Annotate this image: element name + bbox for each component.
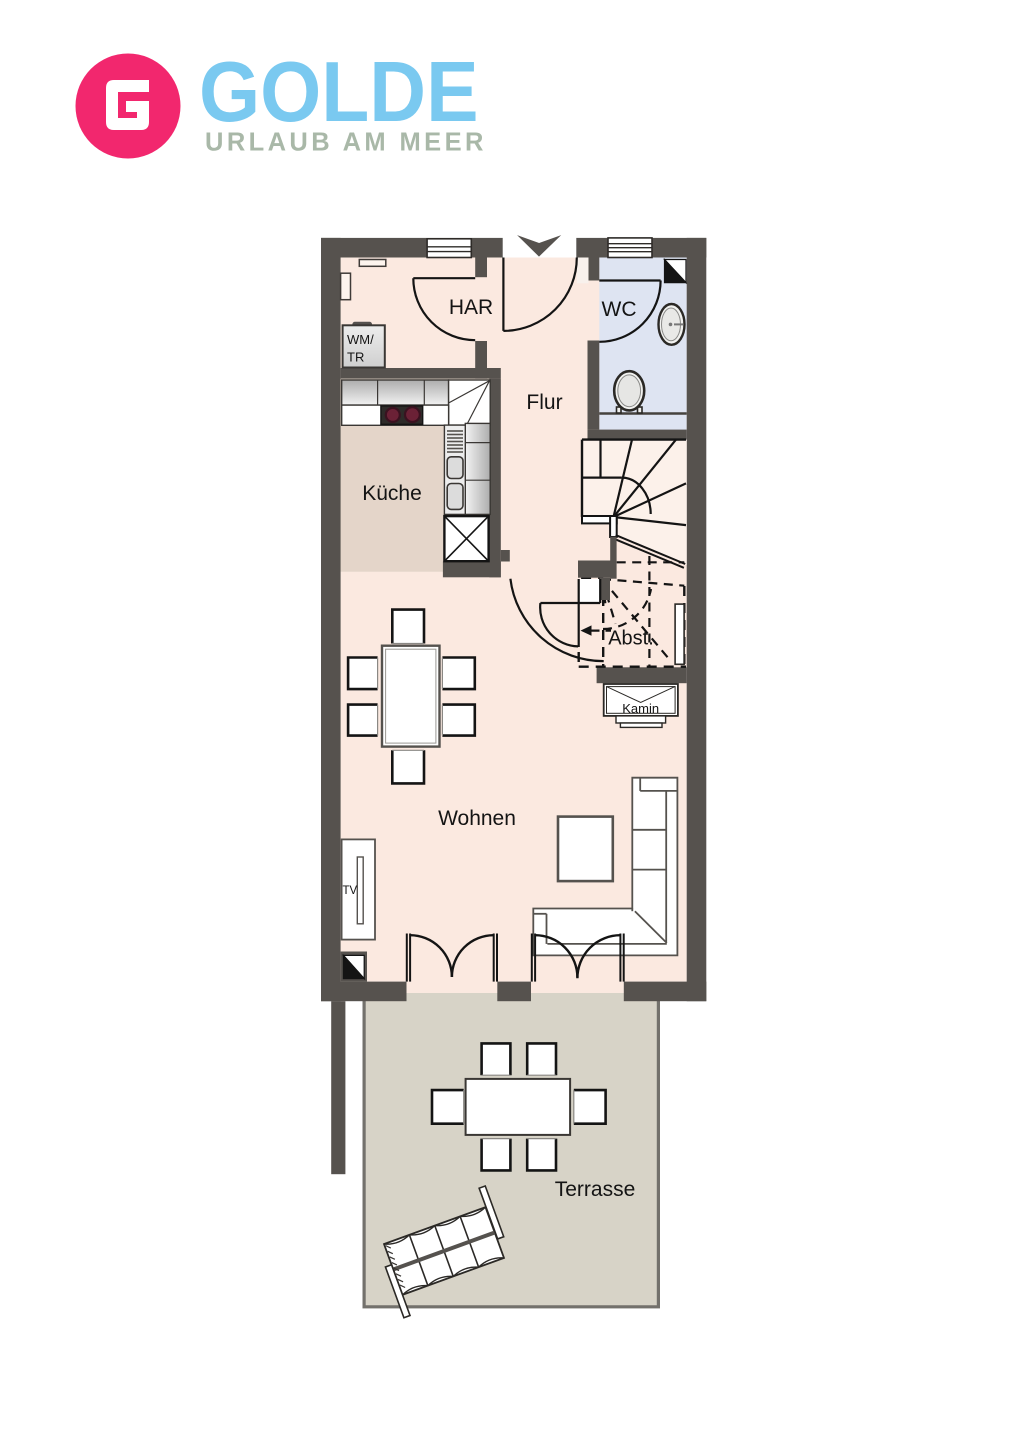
- svg-text:HAR: HAR: [449, 296, 493, 319]
- svg-text:TR: TR: [347, 350, 364, 365]
- svg-text:Küche: Küche: [362, 482, 422, 505]
- svg-text:Terrasse: Terrasse: [555, 1178, 636, 1201]
- svg-text:WM/: WM/: [347, 332, 374, 347]
- svg-text:GOLDE: GOLDE: [199, 45, 479, 139]
- svg-text:TV: TV: [343, 885, 358, 897]
- svg-text:Flur: Flur: [526, 391, 562, 414]
- svg-text:URLAUB AM MEER: URLAUB AM MEER: [205, 129, 487, 157]
- svg-text:Abst.: Abst.: [608, 628, 654, 650]
- svg-text:Wohnen: Wohnen: [438, 807, 516, 830]
- svg-text:Kamin: Kamin: [622, 701, 659, 716]
- svg-text:WC: WC: [602, 298, 637, 321]
